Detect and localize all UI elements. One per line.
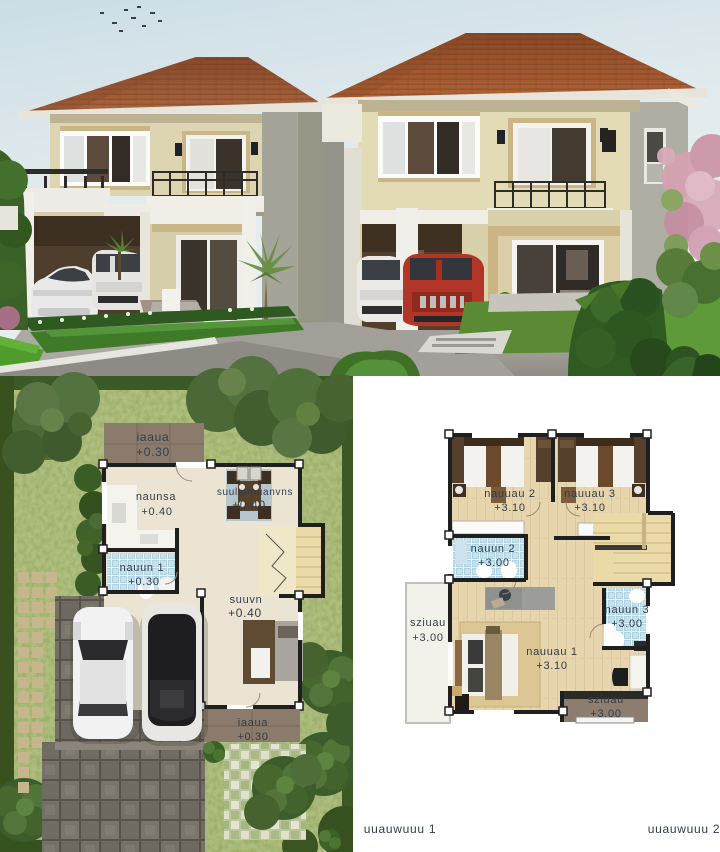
svg-text:+3.00: +3.00 [590,708,621,720]
svg-text:nauun 2: nauun 2 [471,543,516,555]
svg-text:+0.40: +0.40 [228,606,262,620]
svg-text:+3.10: +3.10 [574,502,605,514]
svg-text:+0.30: +0.30 [136,445,170,459]
svg-text:+3.10: +3.10 [494,502,525,514]
svg-text:nauuau 3: nauuau 3 [564,488,615,500]
svg-text:sziuau: sziuau [410,617,446,629]
svg-text:+3.00: +3.00 [611,618,642,630]
svg-text:nauuau 1: nauuau 1 [526,646,577,658]
svg-text:+3.00: +3.00 [412,632,443,644]
svg-text:+0.30: +0.30 [237,731,268,743]
svg-text:suulsrmuanvns: suulsrmuanvns [217,487,293,498]
svg-text:+3.10: +3.10 [536,660,567,672]
svg-text:naunsa: naunsa [136,491,176,503]
svg-text:sziuau: sziuau [588,694,624,706]
svg-text:+3.00: +3.00 [478,557,509,569]
svg-text:nauuau 2: nauuau 2 [484,488,535,500]
svg-text:uuauwuuu 2: uuauwuuu 2 [648,822,720,836]
svg-text:suuvn: suuvn [230,594,263,606]
svg-text:+0.40: +0.40 [141,506,172,518]
svg-text:uuauwuuu 1: uuauwuuu 1 [364,822,436,836]
svg-text:nauun 1: nauun 1 [120,562,165,574]
svg-text:+0.30: +0.30 [128,576,159,588]
svg-text:nauun 3: nauun 3 [605,604,650,616]
svg-text:iaaua: iaaua [238,717,269,729]
svg-text:iaaua: iaaua [137,430,170,444]
svg-text:+0.40: +0.40 [232,498,266,512]
